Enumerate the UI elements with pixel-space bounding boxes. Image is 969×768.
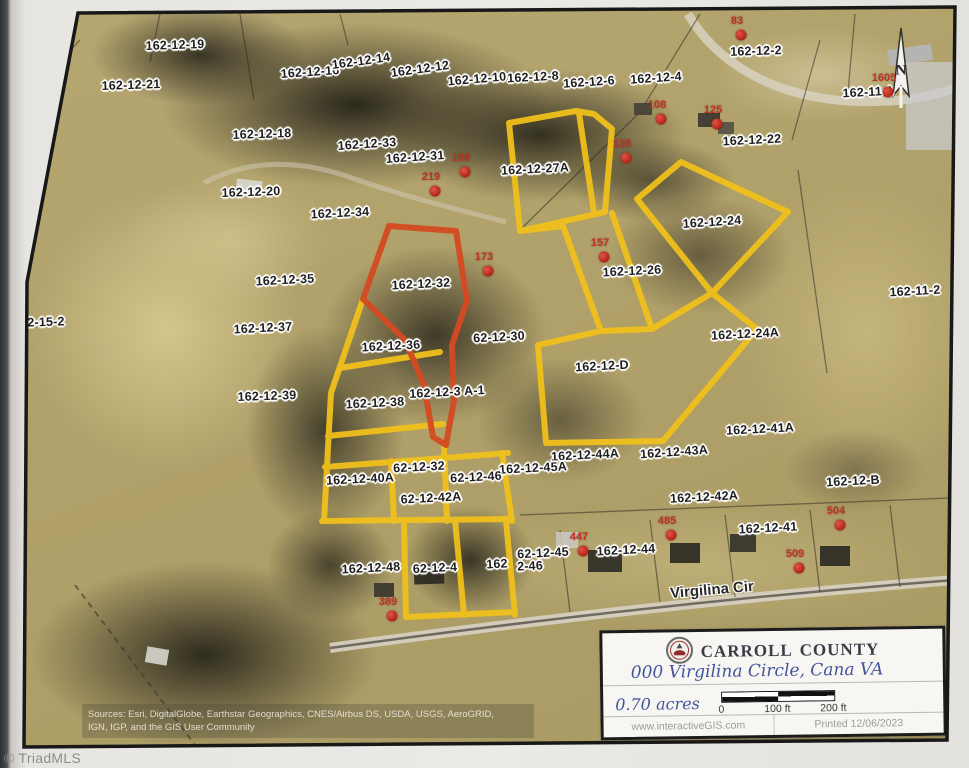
- house-number-label: 135: [613, 138, 631, 150]
- structure-dot: [599, 252, 610, 263]
- house-number-label: 509: [786, 548, 804, 560]
- structure-dot: [460, 167, 471, 178]
- printed-date: Printed 12/06/2023: [773, 713, 944, 735]
- title-block-footer: www.interactiveGIS.com Printed 12/06/202…: [603, 712, 943, 738]
- house-number-label: 125: [704, 104, 722, 116]
- parcel-label: 162: [486, 556, 508, 571]
- structure-dot: [883, 87, 894, 98]
- red-parcel-outline: [363, 226, 467, 445]
- structure-dot: [656, 114, 667, 125]
- parcel-label: 62-12-4: [412, 560, 457, 576]
- scale-bar: [721, 690, 835, 703]
- parcel-label: 162-12-D: [575, 358, 629, 375]
- house-number-label: 1605: [872, 72, 896, 84]
- scale-bar-right-half: [778, 691, 834, 701]
- parcel-label: 2-46: [517, 558, 544, 573]
- triadmls-watermark: © TriadMLS: [4, 750, 81, 766]
- attribution-line2: IGN, IGP, and the GIS User Community: [88, 721, 528, 734]
- house-number-label: 83: [731, 15, 743, 27]
- parcel-label: 2-15-2: [27, 314, 65, 329]
- scale-bar-left-half: [722, 692, 778, 702]
- attribution-line1: Sources: Esri, DigitalGlobe, Earthstar G…: [88, 708, 528, 721]
- parcel-label: 162-12-18: [232, 126, 291, 142]
- house-number-label: 219: [422, 171, 440, 183]
- structure-dot: [736, 30, 747, 41]
- parcel-label: 62-12-46: [450, 469, 502, 486]
- parcel-label: 162-12-8: [507, 69, 559, 86]
- handwritten-acreage: 0.70 acres: [615, 694, 700, 714]
- structure-dot: [578, 546, 589, 557]
- parcel-label: 162-12-21: [101, 77, 160, 93]
- structure-dot: [430, 186, 441, 197]
- map-area: 162-12-19162-12-21162-12-16162-12-14162-…: [0, 0, 969, 768]
- north-arrow-letter: N: [896, 63, 907, 80]
- structure-dot: [387, 611, 398, 622]
- structure-dot: [712, 119, 723, 130]
- house-number-label: 157: [591, 237, 609, 249]
- parcel-label: 16: [951, 592, 965, 606]
- house-number-label: 173: [475, 251, 493, 263]
- house-number-label: 108: [452, 152, 470, 164]
- house-number-label: 389: [379, 596, 397, 608]
- parcel-label: 162-11-2: [889, 283, 941, 300]
- parcel-label: 62-12-30: [473, 329, 525, 346]
- structure-dot: [835, 520, 846, 531]
- house-number-label: 108: [648, 99, 666, 111]
- title-block: Carroll County 000 Virgilina Circle, Can…: [599, 626, 947, 741]
- parcel-label: 62-12-32: [393, 459, 445, 476]
- structure-dot: [794, 563, 805, 574]
- house-number-label: 504: [827, 505, 845, 517]
- structure-dot: [666, 530, 677, 541]
- scanned-parcel-map-photo: 162-12-19162-12-21162-12-16162-12-14162-…: [0, 0, 969, 768]
- structure-dot: [621, 153, 632, 164]
- gis-website: www.interactiveGIS.com: [603, 715, 773, 737]
- parcel-label: 162-12-2: [730, 43, 782, 59]
- parcel-label: 162-12-20: [221, 184, 280, 200]
- parcel-label: 162-12-19: [145, 37, 204, 53]
- parcel-label: 162-12-39: [237, 388, 296, 404]
- parcel-label: 162-12-B: [826, 473, 880, 490]
- imagery-attribution: Sources: Esri, DigitalGlobe, Earthstar G…: [82, 704, 534, 738]
- yellow-parcel-outlines: [322, 111, 788, 617]
- structure-dot: [483, 266, 494, 277]
- house-number-label: 485: [658, 515, 676, 527]
- house-number-label: 447: [570, 531, 588, 543]
- county-seal-icon: [665, 636, 693, 664]
- parcel-lines: [27, 14, 950, 612]
